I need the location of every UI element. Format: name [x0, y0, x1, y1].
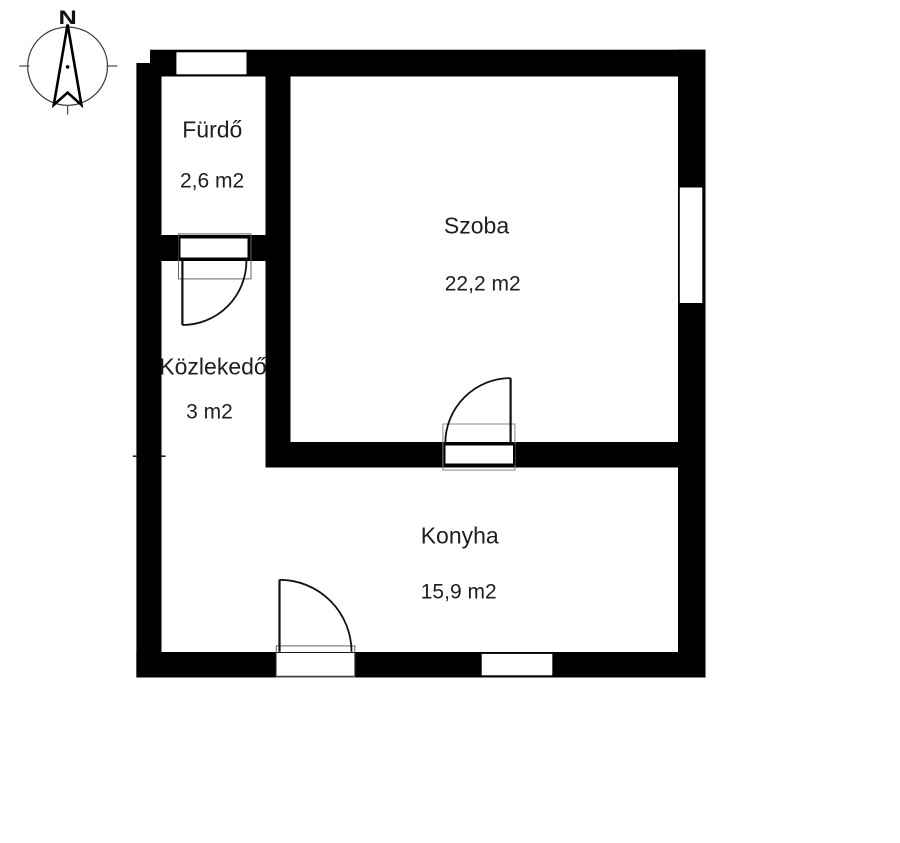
svg-text:2,6 m2: 2,6 m2	[180, 169, 244, 192]
svg-text:Szoba: Szoba	[444, 212, 509, 238]
svg-text:3 m2: 3 m2	[186, 401, 233, 424]
svg-text:15,9 m2: 15,9 m2	[421, 581, 497, 604]
svg-text:Fürdő: Fürdő	[182, 117, 242, 143]
svg-text:Konyha: Konyha	[421, 522, 499, 548]
svg-text:Közlekedő: Közlekedő	[159, 354, 266, 380]
svg-text:22,2 m2: 22,2 m2	[445, 273, 521, 296]
